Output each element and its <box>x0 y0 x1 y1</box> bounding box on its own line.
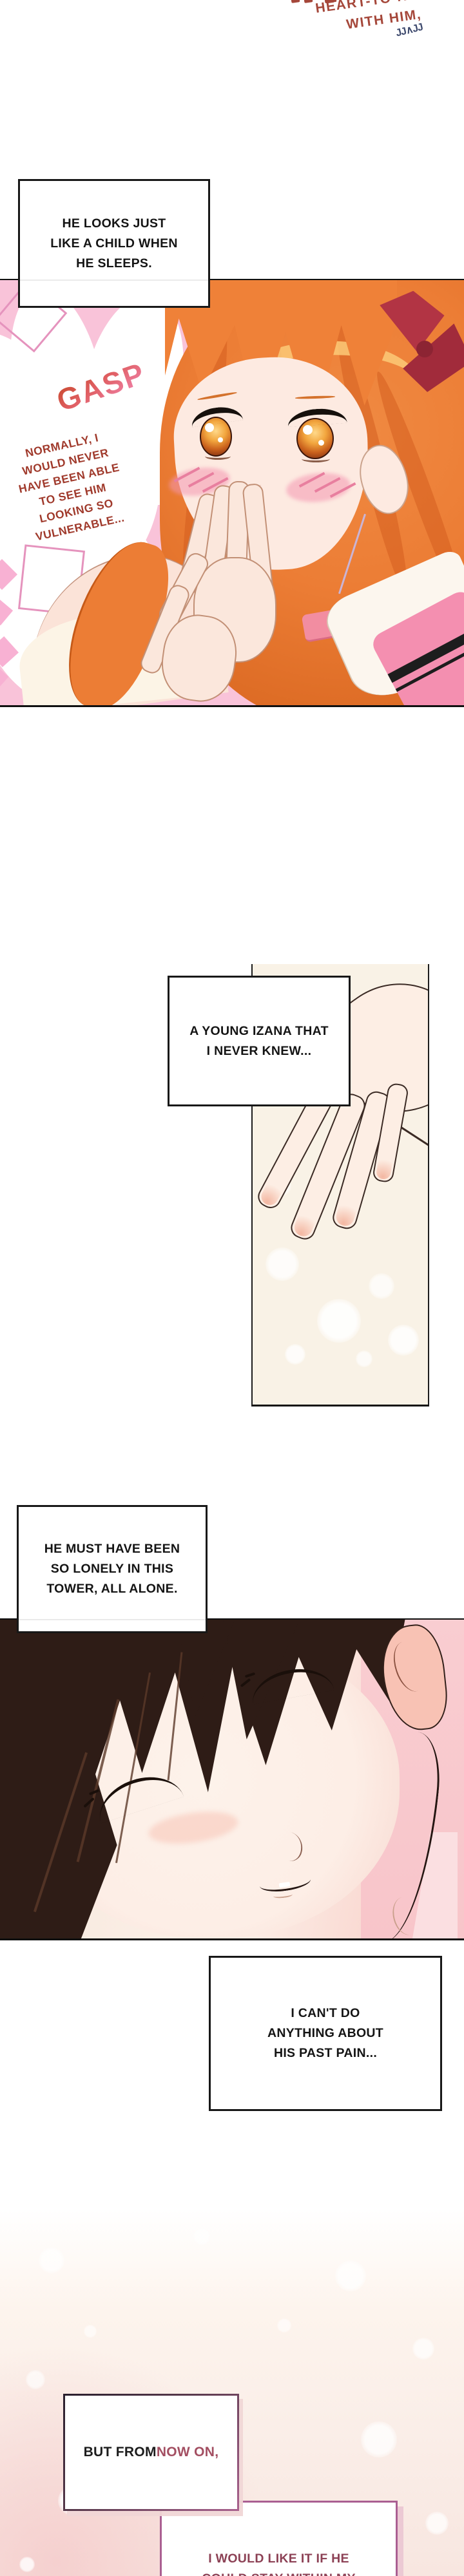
girl-lower-lash <box>205 453 231 460</box>
narration-bubble-2: A YOUNG IZANA THAT I NEVER KNEW... <box>168 976 351 1106</box>
caption-b-line-1: I WOULD LIKE IT IF HE <box>162 2549 396 2569</box>
eye-sparkle <box>318 440 324 446</box>
cut-text-fragment <box>304 0 313 3</box>
caption-a-prefix: BUT FROM <box>84 2445 157 2460</box>
eye-sparkle <box>303 425 313 435</box>
bokeh-circle <box>361 2421 397 2458</box>
bubble-1-line-1: HE LOOKS JUST <box>62 214 166 234</box>
eye-sparkle <box>218 437 223 442</box>
bokeh-circle <box>19 2557 35 2572</box>
bokeh-circle <box>388 1325 419 1356</box>
fingertip <box>292 1209 317 1238</box>
bokeh-circle <box>277 2318 291 2333</box>
bokeh-circle <box>317 1299 361 1343</box>
bokeh-circle <box>26 2370 45 2389</box>
narration-bubble-1: HE LOOKS JUST LIKE A CHILD WHEN HE SLEEP… <box>18 179 210 308</box>
ear-inner-line <box>388 1637 432 1695</box>
bokeh-circle <box>285 1344 305 1365</box>
hair-bow-knot <box>416 341 433 357</box>
bubble-2-line-2: I NEVER KNEW... <box>207 1041 312 1061</box>
panel-girl: GASP NORMALLY, I WOULD NEVER HAVE BEEN A… <box>0 279 464 707</box>
bubble-3-line-1: HE MUST HAVE BEEN <box>44 1539 180 1559</box>
narration-bubble-4: I CAN'T DO ANYTHING ABOUT HIS PAST PAIN.… <box>209 1956 442 2111</box>
caption-a-accent: NOW ON, <box>157 2445 219 2460</box>
caption-box-a: BUT FROM NOW ON, <box>63 2394 239 2511</box>
caption-b-line-2: COULD STAY WITHIN MY <box>162 2569 396 2576</box>
bokeh-circle <box>425 2512 449 2535</box>
bokeh-circle <box>335 2260 366 2291</box>
panel-sleeping-man <box>0 1618 464 1940</box>
bokeh-circle <box>193 2228 210 2245</box>
bubble-1-line-3: HE SLEEPS. <box>76 254 152 274</box>
panel-border-showthrough <box>20 279 208 281</box>
bokeh-circle <box>369 1273 394 1299</box>
fingertip <box>258 1179 284 1208</box>
tooth-highlight <box>279 1882 291 1888</box>
bubble-4-line-3: HIS PAST PAIN... <box>274 2043 377 2063</box>
bokeh-circle <box>266 1247 299 1281</box>
manga-page: HEART-TO-HEART WITH HIM, JJ∧JJ HE LOOKS … <box>0 0 464 2576</box>
fingertip <box>375 1154 394 1180</box>
girl-lower-lash <box>302 455 330 462</box>
bubble-3-line-3: TOWER, ALL ALONE. <box>46 1579 177 1599</box>
panel-border-showthrough <box>19 1619 206 1620</box>
bokeh-circle <box>356 1350 372 1367</box>
bubble-4-line-1: I CAN'T DO <box>291 2003 360 2023</box>
fingertip <box>334 1200 358 1228</box>
caption-box-b: I WOULD LIKE IT IF HE COULD STAY WITHIN … <box>160 2501 398 2576</box>
bubble-1-line-2: LIKE A CHILD WHEN <box>50 234 178 254</box>
bokeh-circle <box>412 2338 434 2360</box>
bubble-3-line-2: SO LONELY IN THIS <box>51 1559 173 1579</box>
bokeh-circle <box>84 2325 97 2338</box>
cut-text-fragment <box>291 0 300 3</box>
bokeh-circle <box>39 2248 64 2273</box>
narration-bubble-3: HE MUST HAVE BEEN SO LONELY IN THIS TOWE… <box>17 1505 208 1633</box>
bubble-4-line-2: ANYTHING ABOUT <box>267 2023 383 2043</box>
bubble-2-line-1: A YOUNG IZANA THAT <box>189 1021 329 1041</box>
